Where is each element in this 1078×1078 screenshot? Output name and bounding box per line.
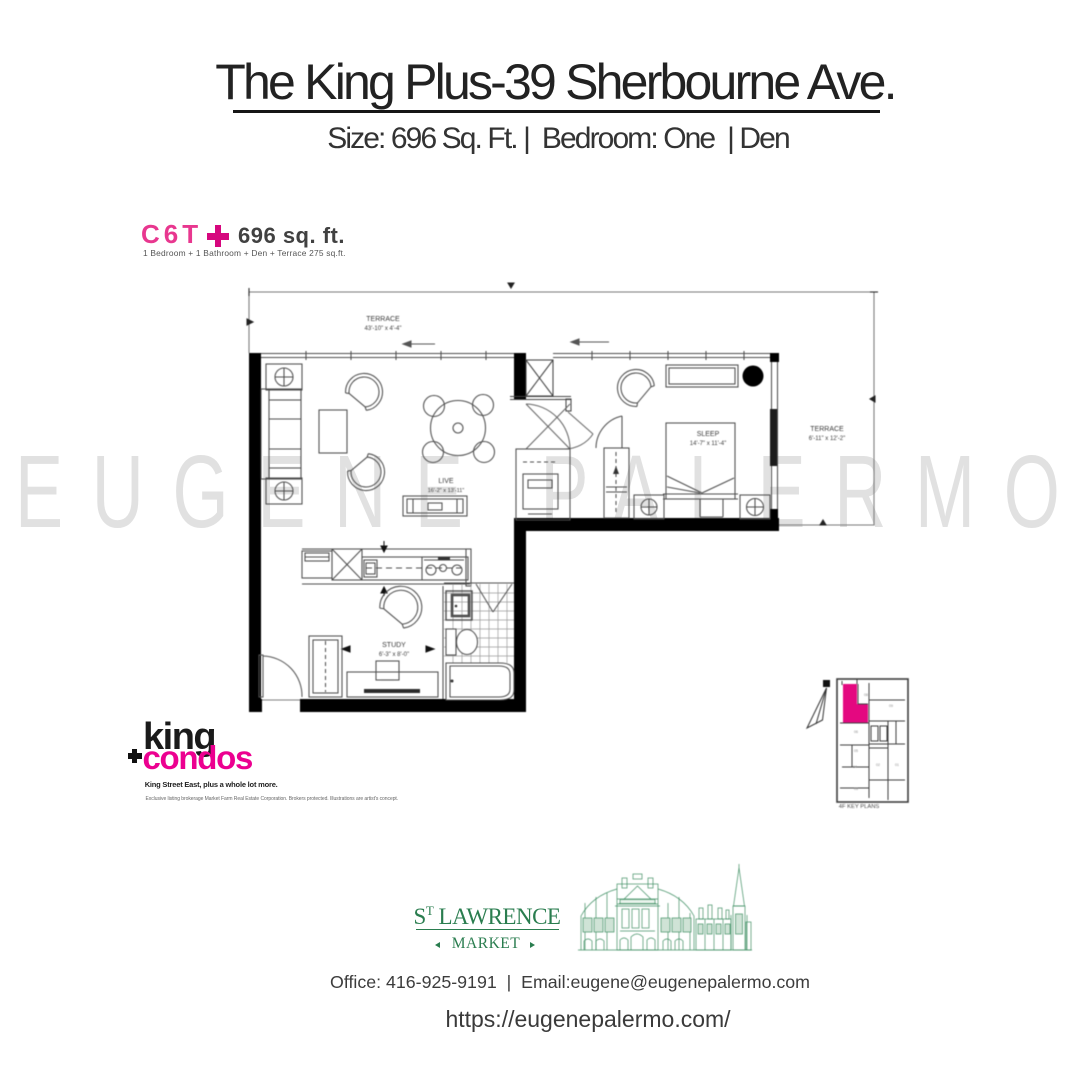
svg-text:04: 04 <box>853 765 857 769</box>
svg-text:06: 06 <box>854 730 858 734</box>
svg-text:6'-3" x 8'-0": 6'-3" x 8'-0" <box>379 652 409 658</box>
svg-text:08: 08 <box>864 693 868 697</box>
svg-text:14'-7" x 11'-4": 14'-7" x 11'-4" <box>690 441 726 447</box>
svg-text:09: 09 <box>889 704 893 708</box>
svg-text:STUDY: STUDY <box>382 642 406 649</box>
svg-text:TERRACE: TERRACE <box>810 426 844 433</box>
svg-text:4F KEY PLANS: 4F KEY PLANS <box>839 804 880 810</box>
svg-text:6'-11" x 12'-2": 6'-11" x 12'-2" <box>809 436 845 442</box>
svg-text:02: 02 <box>876 763 880 767</box>
svg-text:16'-2" x 13'-11": 16'-2" x 13'-11" <box>428 488 465 494</box>
svg-text:SLEEP: SLEEP <box>697 431 720 438</box>
svg-text:TERRACE: TERRACE <box>366 316 400 323</box>
svg-text:05: 05 <box>854 749 858 753</box>
svg-text:01: 01 <box>895 763 899 767</box>
svg-text:LIVE: LIVE <box>438 478 454 485</box>
svg-text:43'-10" x 4'-4": 43'-10" x 4'-4" <box>365 326 402 332</box>
svg-text:03: 03 <box>854 787 858 791</box>
